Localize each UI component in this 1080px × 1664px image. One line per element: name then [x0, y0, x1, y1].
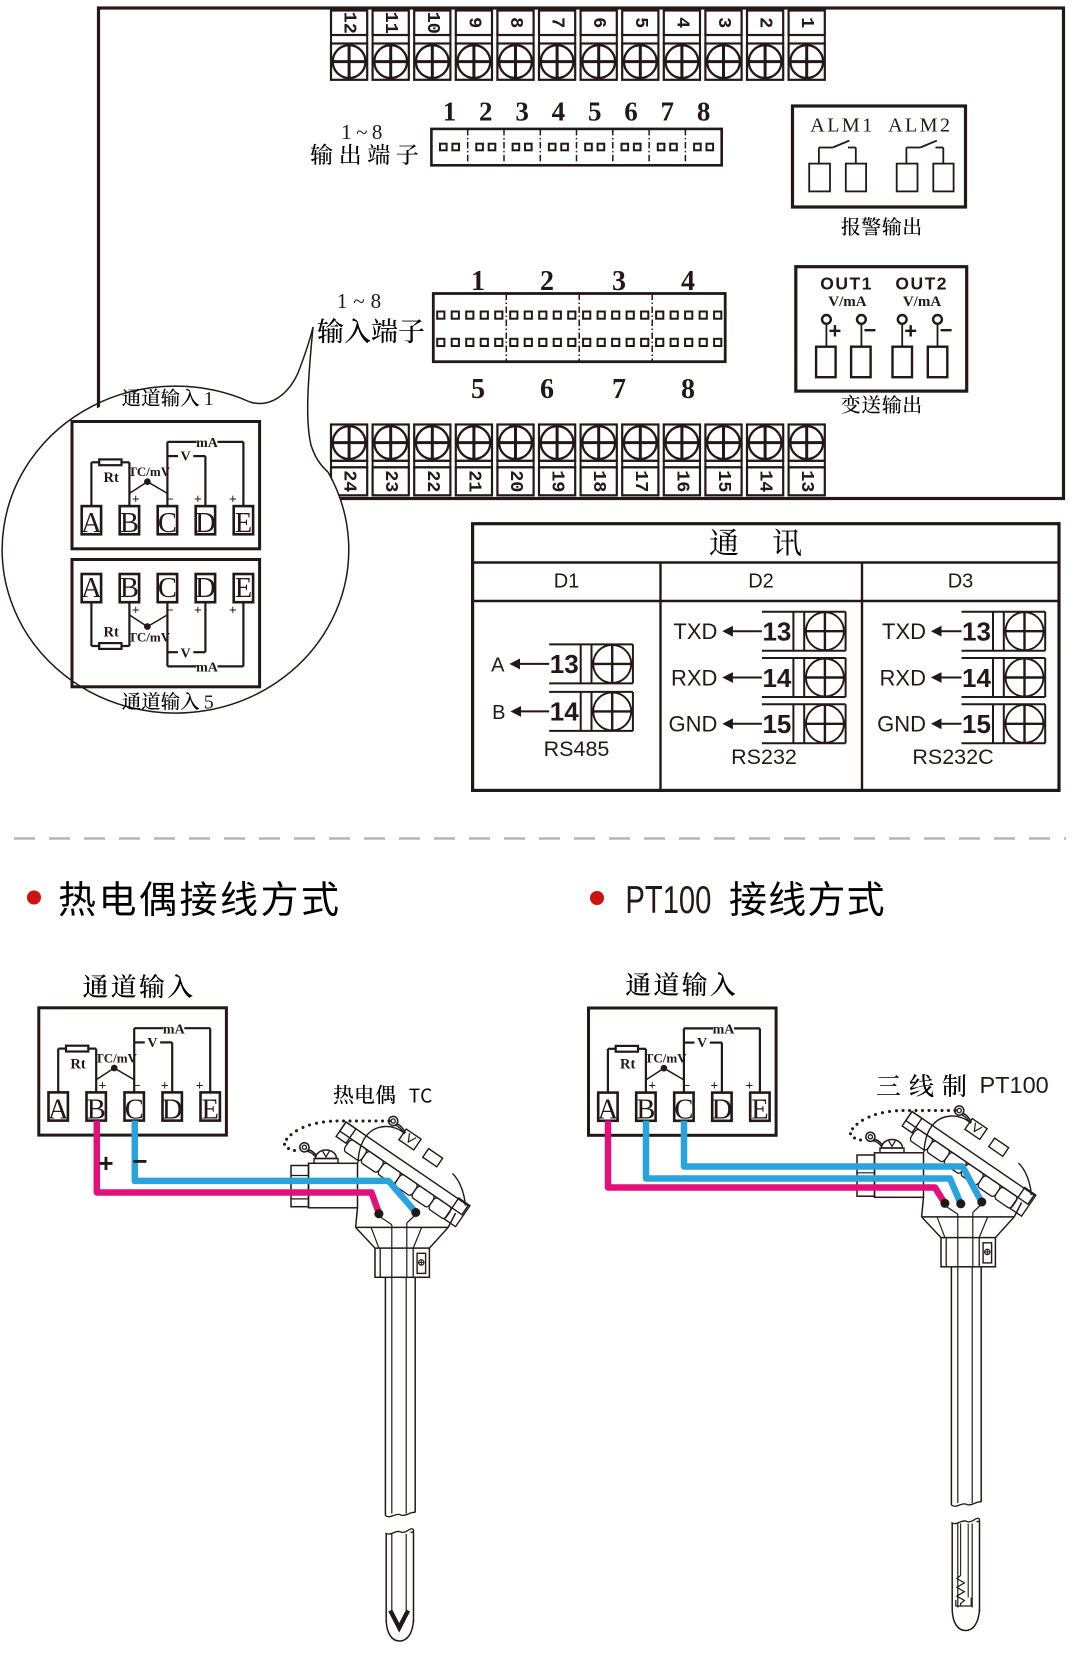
- svg-text:E: E: [751, 1095, 768, 1126]
- svg-text:2: 2: [540, 266, 554, 297]
- svg-text:+: +: [196, 1078, 204, 1093]
- svg-text:ALM2: ALM2: [888, 115, 952, 137]
- svg-text:21: 21: [463, 470, 484, 492]
- svg-text:V: V: [697, 1036, 707, 1051]
- svg-text:GND: GND: [877, 712, 926, 737]
- svg-text:RXD: RXD: [880, 665, 926, 690]
- svg-text:A: A: [81, 573, 102, 604]
- svg-text:11: 11: [380, 12, 401, 34]
- svg-text:2: 2: [479, 97, 493, 127]
- svg-text:RXD: RXD: [671, 665, 717, 690]
- svg-text:16: 16: [671, 470, 692, 492]
- svg-text:A: A: [491, 655, 505, 677]
- svg-text:V: V: [181, 647, 191, 662]
- svg-text:mA: mA: [196, 660, 219, 675]
- svg-text:+: +: [132, 492, 140, 507]
- svg-text:V/mA: V/mA: [828, 294, 866, 310]
- svg-text:RS232C: RS232C: [912, 745, 993, 769]
- svg-text:Rt: Rt: [104, 470, 119, 486]
- svg-text:1: 1: [204, 388, 214, 410]
- svg-text:+: +: [745, 1078, 753, 1093]
- svg-text:13: 13: [550, 649, 579, 679]
- svg-text:15: 15: [962, 709, 991, 739]
- svg-text:RS232: RS232: [731, 745, 797, 769]
- svg-text:C: C: [158, 508, 177, 539]
- svg-text:14: 14: [962, 663, 991, 693]
- svg-text:14: 14: [550, 697, 579, 727]
- svg-text:−: −: [166, 603, 174, 618]
- svg-text:4: 4: [552, 97, 566, 127]
- svg-text:8: 8: [681, 374, 695, 405]
- svg-text:17: 17: [630, 470, 651, 492]
- svg-text:A: A: [48, 1094, 69, 1125]
- svg-text:20: 20: [505, 470, 526, 492]
- svg-text:+: +: [828, 318, 841, 343]
- svg-text:7: 7: [612, 374, 626, 405]
- svg-text:TC/mV: TC/mV: [95, 1050, 138, 1065]
- svg-text:C: C: [158, 573, 177, 604]
- svg-text:mA: mA: [196, 436, 219, 451]
- svg-text:OUT1: OUT1: [820, 274, 873, 294]
- svg-text:PT100: PT100: [625, 879, 711, 922]
- svg-text:4: 4: [681, 266, 695, 297]
- svg-text:E: E: [235, 508, 252, 539]
- svg-text:15: 15: [762, 709, 791, 739]
- svg-text:D2: D2: [748, 571, 774, 593]
- svg-text:+: +: [648, 1078, 656, 1093]
- svg-text:1: 1: [796, 17, 817, 28]
- svg-text:D3: D3: [948, 571, 974, 593]
- svg-text:13: 13: [962, 617, 991, 647]
- svg-text:1: 1: [471, 266, 485, 297]
- svg-text:−: −: [683, 1078, 691, 1093]
- svg-text:23: 23: [380, 470, 401, 492]
- svg-text:14: 14: [762, 663, 791, 693]
- svg-text:TXD: TXD: [882, 619, 926, 644]
- svg-text:+: +: [161, 1078, 169, 1093]
- svg-text:13: 13: [762, 617, 791, 647]
- svg-text:−: −: [940, 317, 953, 342]
- svg-text:+: +: [99, 1078, 107, 1093]
- svg-text:5: 5: [588, 97, 602, 127]
- svg-text:−: −: [132, 1146, 147, 1176]
- svg-text:V: V: [181, 450, 191, 465]
- svg-text:E: E: [201, 1094, 218, 1125]
- svg-text:1~8: 1~8: [337, 289, 387, 313]
- svg-text:mA: mA: [713, 1023, 736, 1038]
- svg-text:−: −: [133, 1078, 141, 1093]
- svg-text:24: 24: [339, 470, 360, 492]
- svg-text:7: 7: [661, 97, 675, 127]
- svg-text:3: 3: [713, 17, 734, 28]
- svg-text:RS485: RS485: [544, 737, 610, 761]
- svg-text:D: D: [195, 508, 216, 539]
- svg-text:8: 8: [505, 17, 526, 28]
- svg-text:−: −: [863, 317, 876, 342]
- svg-text:GND: GND: [669, 712, 718, 737]
- svg-text:ALM1: ALM1: [810, 115, 874, 137]
- svg-text:2: 2: [755, 17, 776, 28]
- svg-text:V/mA: V/mA: [903, 294, 941, 310]
- svg-text:4: 4: [671, 17, 692, 28]
- svg-text:6: 6: [540, 374, 554, 405]
- svg-text:+: +: [711, 1078, 719, 1093]
- svg-text:6: 6: [588, 17, 609, 28]
- svg-text:7: 7: [547, 17, 568, 28]
- svg-text:B: B: [120, 573, 139, 604]
- svg-text:Rt: Rt: [620, 1057, 635, 1073]
- svg-text:A: A: [81, 508, 102, 539]
- svg-text:TC/mV: TC/mV: [128, 464, 171, 479]
- svg-text:1~8: 1~8: [341, 120, 387, 144]
- svg-text:5: 5: [204, 692, 214, 714]
- svg-text:+: +: [904, 318, 917, 343]
- svg-text:5: 5: [630, 17, 651, 28]
- svg-text:22: 22: [422, 470, 443, 492]
- svg-text:19: 19: [547, 470, 568, 492]
- svg-text:+: +: [229, 492, 237, 507]
- svg-text:−: −: [166, 492, 174, 507]
- svg-text:B: B: [120, 508, 139, 539]
- svg-text:B: B: [492, 702, 505, 724]
- svg-text:15: 15: [713, 470, 734, 492]
- svg-text:9: 9: [463, 17, 484, 28]
- svg-text:+: +: [194, 603, 202, 618]
- svg-text:PT100: PT100: [980, 1072, 1049, 1098]
- svg-text:18: 18: [588, 470, 609, 492]
- svg-text:13: 13: [796, 470, 817, 492]
- svg-text:V: V: [147, 1036, 157, 1051]
- svg-text:TC/mV: TC/mV: [645, 1051, 688, 1066]
- svg-text:TXD: TXD: [673, 619, 717, 644]
- svg-text:5: 5: [471, 374, 485, 405]
- svg-text:+: +: [132, 603, 140, 618]
- svg-text:14: 14: [755, 470, 776, 492]
- svg-text:10: 10: [422, 12, 443, 34]
- svg-text:D: D: [195, 573, 216, 604]
- svg-text:6: 6: [624, 97, 638, 127]
- svg-text:D1: D1: [554, 571, 580, 593]
- svg-text:+: +: [229, 603, 237, 618]
- svg-text:D: D: [162, 1094, 183, 1125]
- svg-text:Rt: Rt: [104, 625, 119, 641]
- svg-text:12: 12: [339, 12, 360, 34]
- svg-text:E: E: [235, 573, 252, 604]
- svg-text:+: +: [194, 492, 202, 507]
- svg-text:1: 1: [443, 97, 457, 127]
- svg-text:8: 8: [697, 97, 711, 127]
- svg-text:3: 3: [515, 97, 529, 127]
- svg-text:mA: mA: [163, 1022, 186, 1037]
- svg-text:OUT2: OUT2: [895, 274, 948, 294]
- svg-text:+: +: [98, 1148, 113, 1178]
- svg-text:3: 3: [612, 266, 626, 297]
- svg-text:D: D: [712, 1095, 733, 1126]
- svg-text:TC/mV: TC/mV: [128, 630, 171, 645]
- svg-text:Rt: Rt: [70, 1057, 85, 1073]
